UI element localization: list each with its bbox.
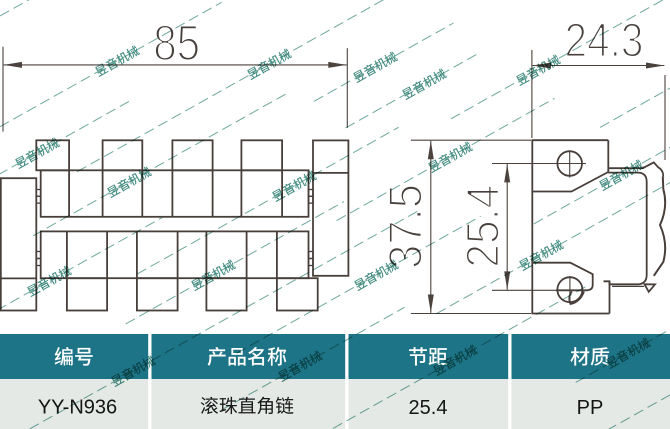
svg-text:PP: PP	[577, 397, 604, 419]
svg-text:25.4: 25.4	[409, 397, 448, 419]
svg-text:YY-N936: YY-N936	[38, 397, 117, 419]
svg-text:24.3: 24.3	[565, 15, 644, 68]
svg-text:37.5: 37.5	[378, 184, 431, 269]
svg-text:25.4: 25.4	[457, 185, 509, 268]
svg-text:85: 85	[153, 15, 200, 71]
